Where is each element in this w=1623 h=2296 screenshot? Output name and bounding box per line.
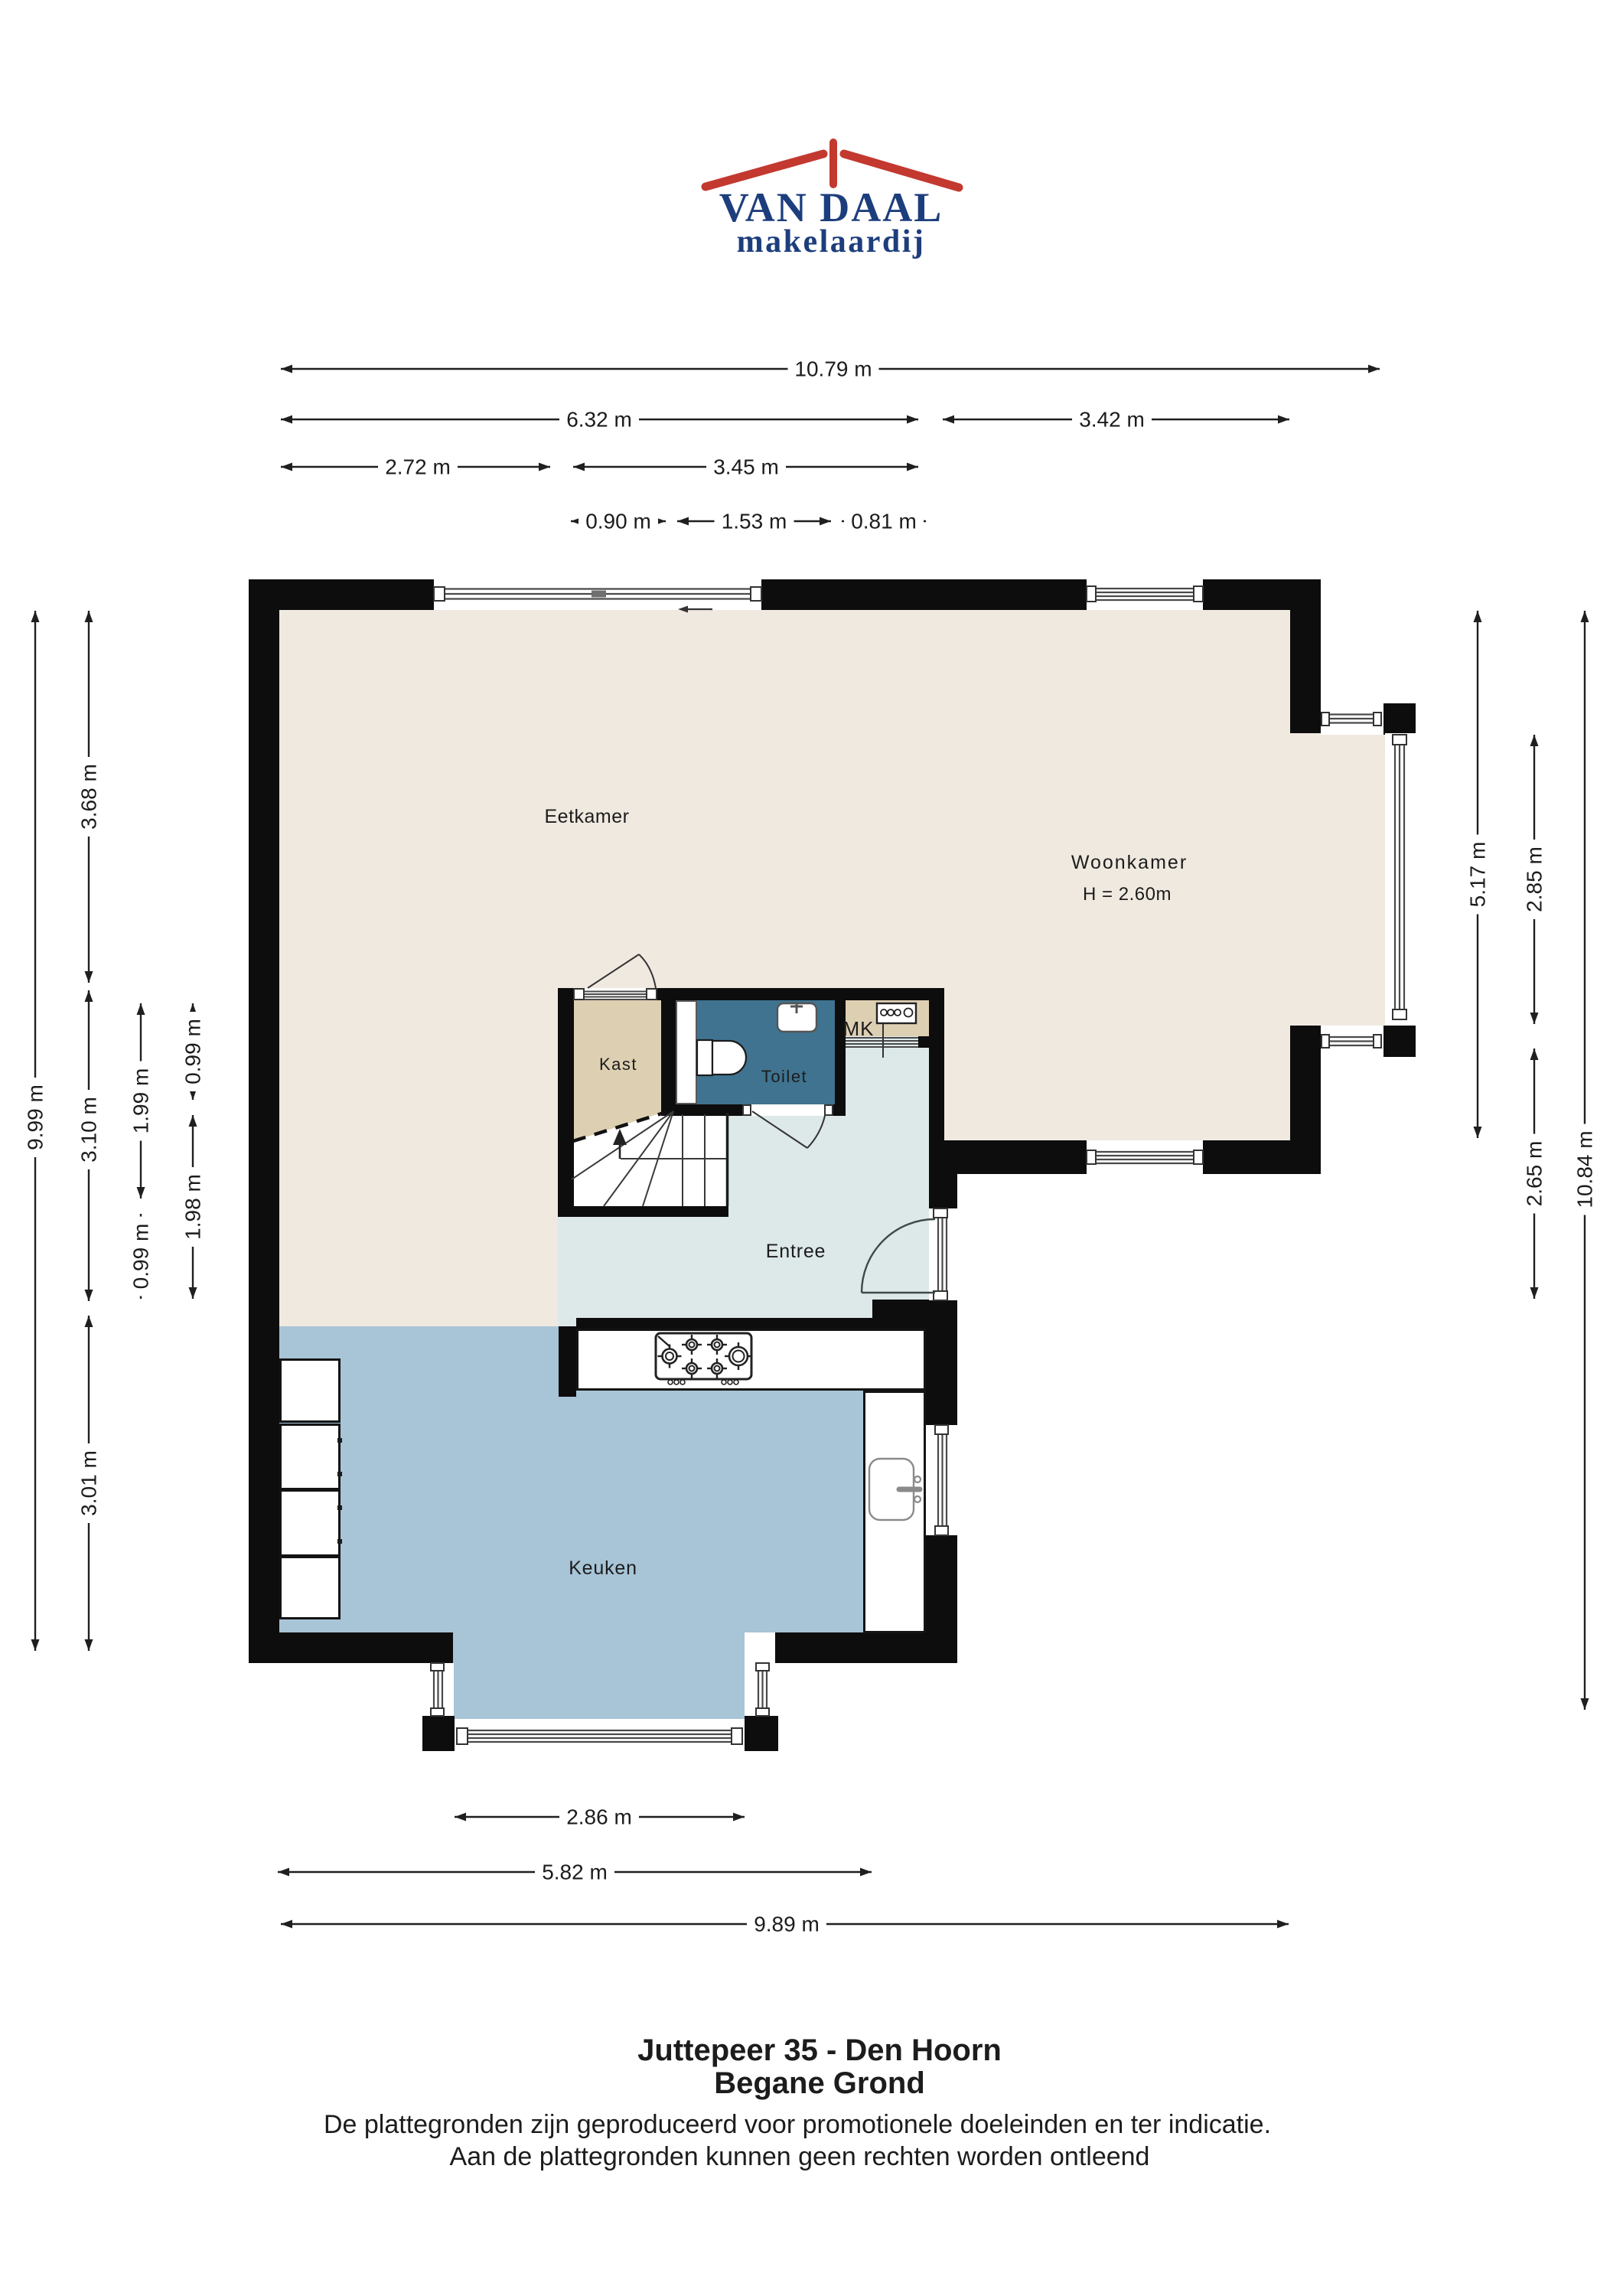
svg-text:2.85 m: 2.85 m — [1523, 846, 1546, 912]
svg-text:0.90 m: 0.90 m — [585, 510, 651, 533]
svg-text:6.32 m: 6.32 m — [566, 408, 632, 432]
svg-text:VAN DAAL: VAN DAAL — [719, 184, 943, 230]
svg-text:Keuken: Keuken — [569, 1557, 637, 1579]
svg-text:MK: MK — [843, 1017, 875, 1040]
svg-text:Eetkamer: Eetkamer — [545, 806, 630, 827]
svg-text:10.84 m: 10.84 m — [1573, 1130, 1597, 1208]
svg-text:0.81 m: 0.81 m — [851, 510, 917, 533]
svg-text:5.82 m: 5.82 m — [542, 1861, 608, 1884]
svg-text:3.01 m: 3.01 m — [77, 1450, 101, 1516]
svg-text:Woonkamer: Woonkamer — [1071, 852, 1188, 873]
svg-text:3.10 m: 3.10 m — [77, 1097, 101, 1163]
svg-text:0.99 m: 0.99 m — [181, 1019, 205, 1084]
svg-text:makelaardij: makelaardij — [737, 224, 926, 259]
svg-text:10.79 m: 10.79 m — [794, 357, 872, 381]
svg-text:H = 2.60m: H = 2.60m — [1083, 884, 1172, 905]
svg-text:Begane Grond: Begane Grond — [714, 2066, 925, 2100]
svg-text:1.53 m: 1.53 m — [722, 510, 787, 533]
svg-text:1.99 m: 1.99 m — [129, 1068, 153, 1134]
svg-text:0.99 m: 0.99 m — [129, 1224, 153, 1290]
svg-text:2.86 m: 2.86 m — [566, 1805, 632, 1829]
svg-text:Juttepeer 35 - Den Hoorn: Juttepeer 35 - Den Hoorn — [637, 2033, 1002, 2067]
svg-text:3.68 m: 3.68 m — [77, 764, 101, 830]
svg-text:De plattegronden zijn geproduc: De plattegronden zijn geproduceerd voor … — [324, 2110, 1271, 2139]
svg-text:2.72 m: 2.72 m — [385, 455, 451, 479]
svg-text:3.45 m: 3.45 m — [713, 455, 779, 479]
svg-text:Entree: Entree — [766, 1241, 826, 1262]
svg-text:9.89 m: 9.89 m — [754, 1913, 820, 1936]
svg-text:5.17 m: 5.17 m — [1466, 842, 1490, 908]
svg-text:Toilet: Toilet — [761, 1067, 807, 1086]
svg-text:1.98 m: 1.98 m — [181, 1174, 205, 1240]
svg-text:3.42 m: 3.42 m — [1079, 408, 1145, 432]
svg-text:9.99 m: 9.99 m — [24, 1084, 47, 1150]
svg-text:2.65 m: 2.65 m — [1523, 1141, 1546, 1207]
svg-text:Kast: Kast — [599, 1055, 637, 1074]
svg-text:Aan de plattegronden kunnen ge: Aan de plattegronden kunnen geen rechten… — [450, 2142, 1150, 2171]
